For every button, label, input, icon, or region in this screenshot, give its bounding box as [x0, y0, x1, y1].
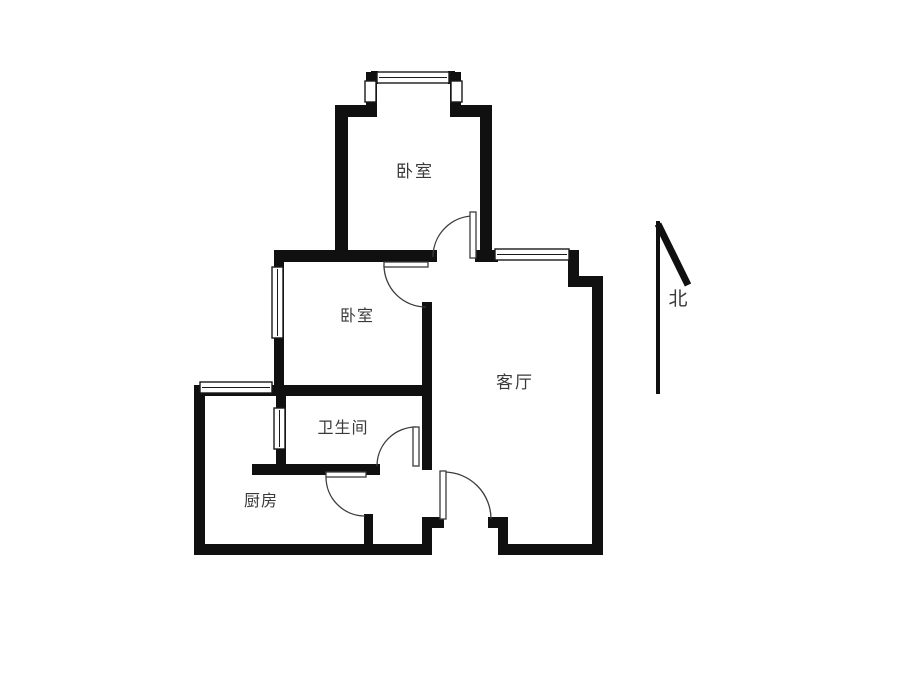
window-bedroom-middle [272, 267, 283, 338]
window-bathroom-partition [274, 408, 285, 449]
room-label-living-room: 客厅 [496, 373, 534, 392]
wall-segment [194, 544, 432, 555]
window-kitchen [200, 382, 272, 393]
wall-segment [498, 544, 603, 555]
north-compass: 北 [658, 221, 688, 394]
door-entrance [440, 471, 491, 519]
wall-segment [194, 385, 205, 555]
compass-arrow-head [658, 224, 688, 285]
room-label-bathroom: 卫生间 [317, 419, 368, 437]
compass-north-label: 北 [668, 288, 687, 310]
wall-segment [480, 105, 492, 262]
room-label-kitchen: 厨房 [244, 492, 278, 510]
walls [194, 71, 603, 555]
wall-segment [274, 250, 437, 262]
floor-plan-drawing: 卧室 卧室 客厅 卫生间 厨房 北 [0, 0, 900, 675]
door-bedroom-north [433, 212, 476, 258]
floor-plan-page: 卧室 卧室 客厅 卫生间 厨房 北 [0, 0, 900, 675]
door-kitchen [326, 472, 366, 516]
room-label-bedroom-middle: 卧室 [340, 307, 374, 325]
door-bathroom [377, 427, 419, 466]
window-living-room [495, 249, 569, 260]
room-label-bedroom-north: 卧室 [396, 162, 434, 181]
door-bedroom-middle [384, 262, 428, 307]
bay-window [365, 72, 462, 102]
wall-segment [364, 514, 373, 555]
wall-segment [335, 105, 348, 262]
wall-segment [592, 277, 603, 555]
wall-segment [422, 517, 432, 555]
